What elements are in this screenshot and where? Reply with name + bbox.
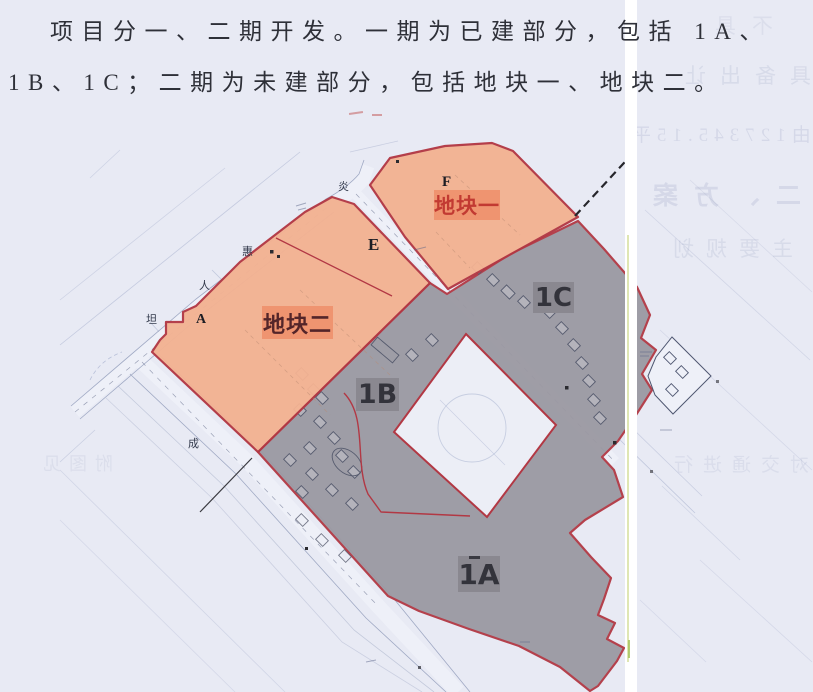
bleedthrough-text: 主要规划 bbox=[661, 233, 793, 263]
plot-1b-label: 1B bbox=[356, 378, 399, 411]
site-plan-map bbox=[0, 0, 813, 692]
plot-1a-overline-mark bbox=[469, 556, 480, 559]
subparcel-a-label: A bbox=[196, 312, 206, 328]
plot-1c-label: 1C bbox=[533, 282, 574, 313]
street-label: 惠 bbox=[242, 243, 253, 259]
paragraph-line-2: 1B、1C；二期为未建部分，包括地块一、地块二。 bbox=[8, 68, 726, 98]
bleedthrough-text: 由127345.15平 bbox=[626, 120, 811, 147]
scan-yellow-line-artifact bbox=[628, 640, 630, 658]
plot2-label: 地块二 bbox=[262, 306, 333, 339]
paragraph-line-1: 项目分一、二期开发。一期为已建部分，包括 1A、 bbox=[50, 17, 771, 47]
plot1-label: 地块一 bbox=[434, 190, 500, 220]
bleedthrough-text: 二、方案 bbox=[637, 176, 801, 212]
plot-1a-label: 1A bbox=[458, 556, 500, 592]
street-label: 人 bbox=[199, 277, 210, 293]
east-building-parcel bbox=[648, 337, 711, 414]
bleedthrough-text: 附图见 bbox=[35, 450, 113, 476]
bleedthrough-text: 对交通进行 bbox=[664, 450, 809, 477]
survey-tick-line bbox=[200, 458, 252, 512]
subparcel-f-label: F bbox=[442, 174, 451, 191]
street-label: 炎 bbox=[338, 178, 349, 194]
street-label: 坦 bbox=[146, 311, 157, 327]
subparcel-e-label: E bbox=[368, 235, 379, 255]
street-label: 成 bbox=[188, 435, 199, 451]
scan-yellow-line-artifact bbox=[627, 235, 629, 662]
red-mark bbox=[372, 114, 382, 116]
scanned-document-page: 不具 具备出让 由127345.15平 二、方案 主要规划 对交通进行 附图见 bbox=[0, 0, 813, 692]
